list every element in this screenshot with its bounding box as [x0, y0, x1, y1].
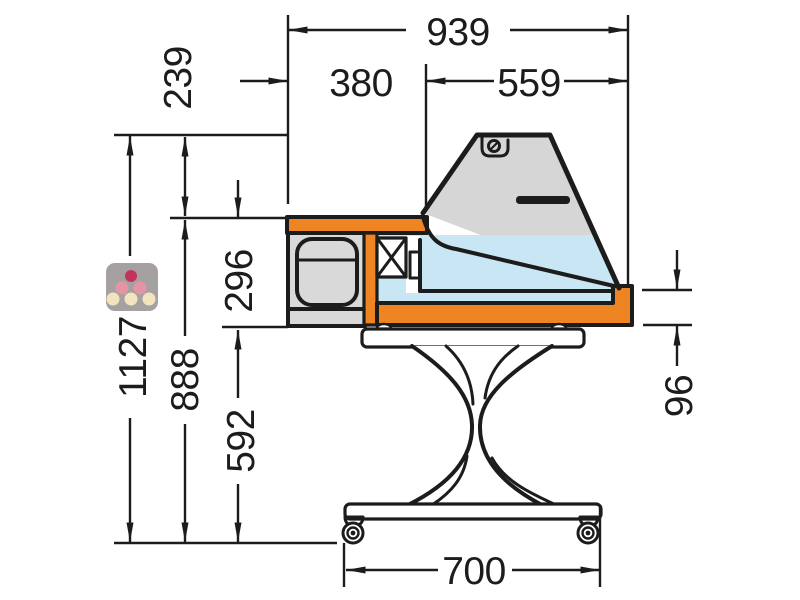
dim-label-base-depth: 700: [442, 550, 506, 593]
caster-left: [343, 517, 363, 543]
display-case-body: [287, 135, 632, 326]
dim-label-worktop-height: 888: [164, 348, 207, 412]
dim-label-overall-height: 1127: [112, 316, 155, 398]
service-gap: [406, 236, 420, 293]
worktop-band: [287, 217, 427, 233]
pedestal-base: [343, 324, 601, 543]
pedestal-top-plate: [362, 329, 584, 347]
caster-right: [578, 517, 598, 543]
grapes-logo-icon: [106, 263, 158, 311]
dim-label-rear-depth: 380: [329, 62, 393, 105]
dim-label-underframe-height: 592: [220, 409, 263, 473]
display-case-diagram: 939 380 559 239 1127 888 296 592 96 700: [0, 0, 800, 600]
handle-slot: [516, 196, 570, 204]
dim-label-hood-height: 239: [157, 46, 200, 110]
dim-label-front-glass-depth: 559: [497, 62, 561, 105]
dim-label-overall-depth: 939: [426, 11, 490, 54]
dim-label-bumper-height: 96: [658, 375, 701, 417]
compressor: [297, 239, 357, 305]
dim-label-well-height: 296: [218, 249, 261, 313]
evaporator-box: [377, 238, 406, 277]
dimension-drawing: 939 380 559 239 1127 888 296 592 96 700: [0, 0, 800, 600]
pedestal-foot: [345, 504, 601, 519]
compartment-base: [288, 309, 365, 326]
